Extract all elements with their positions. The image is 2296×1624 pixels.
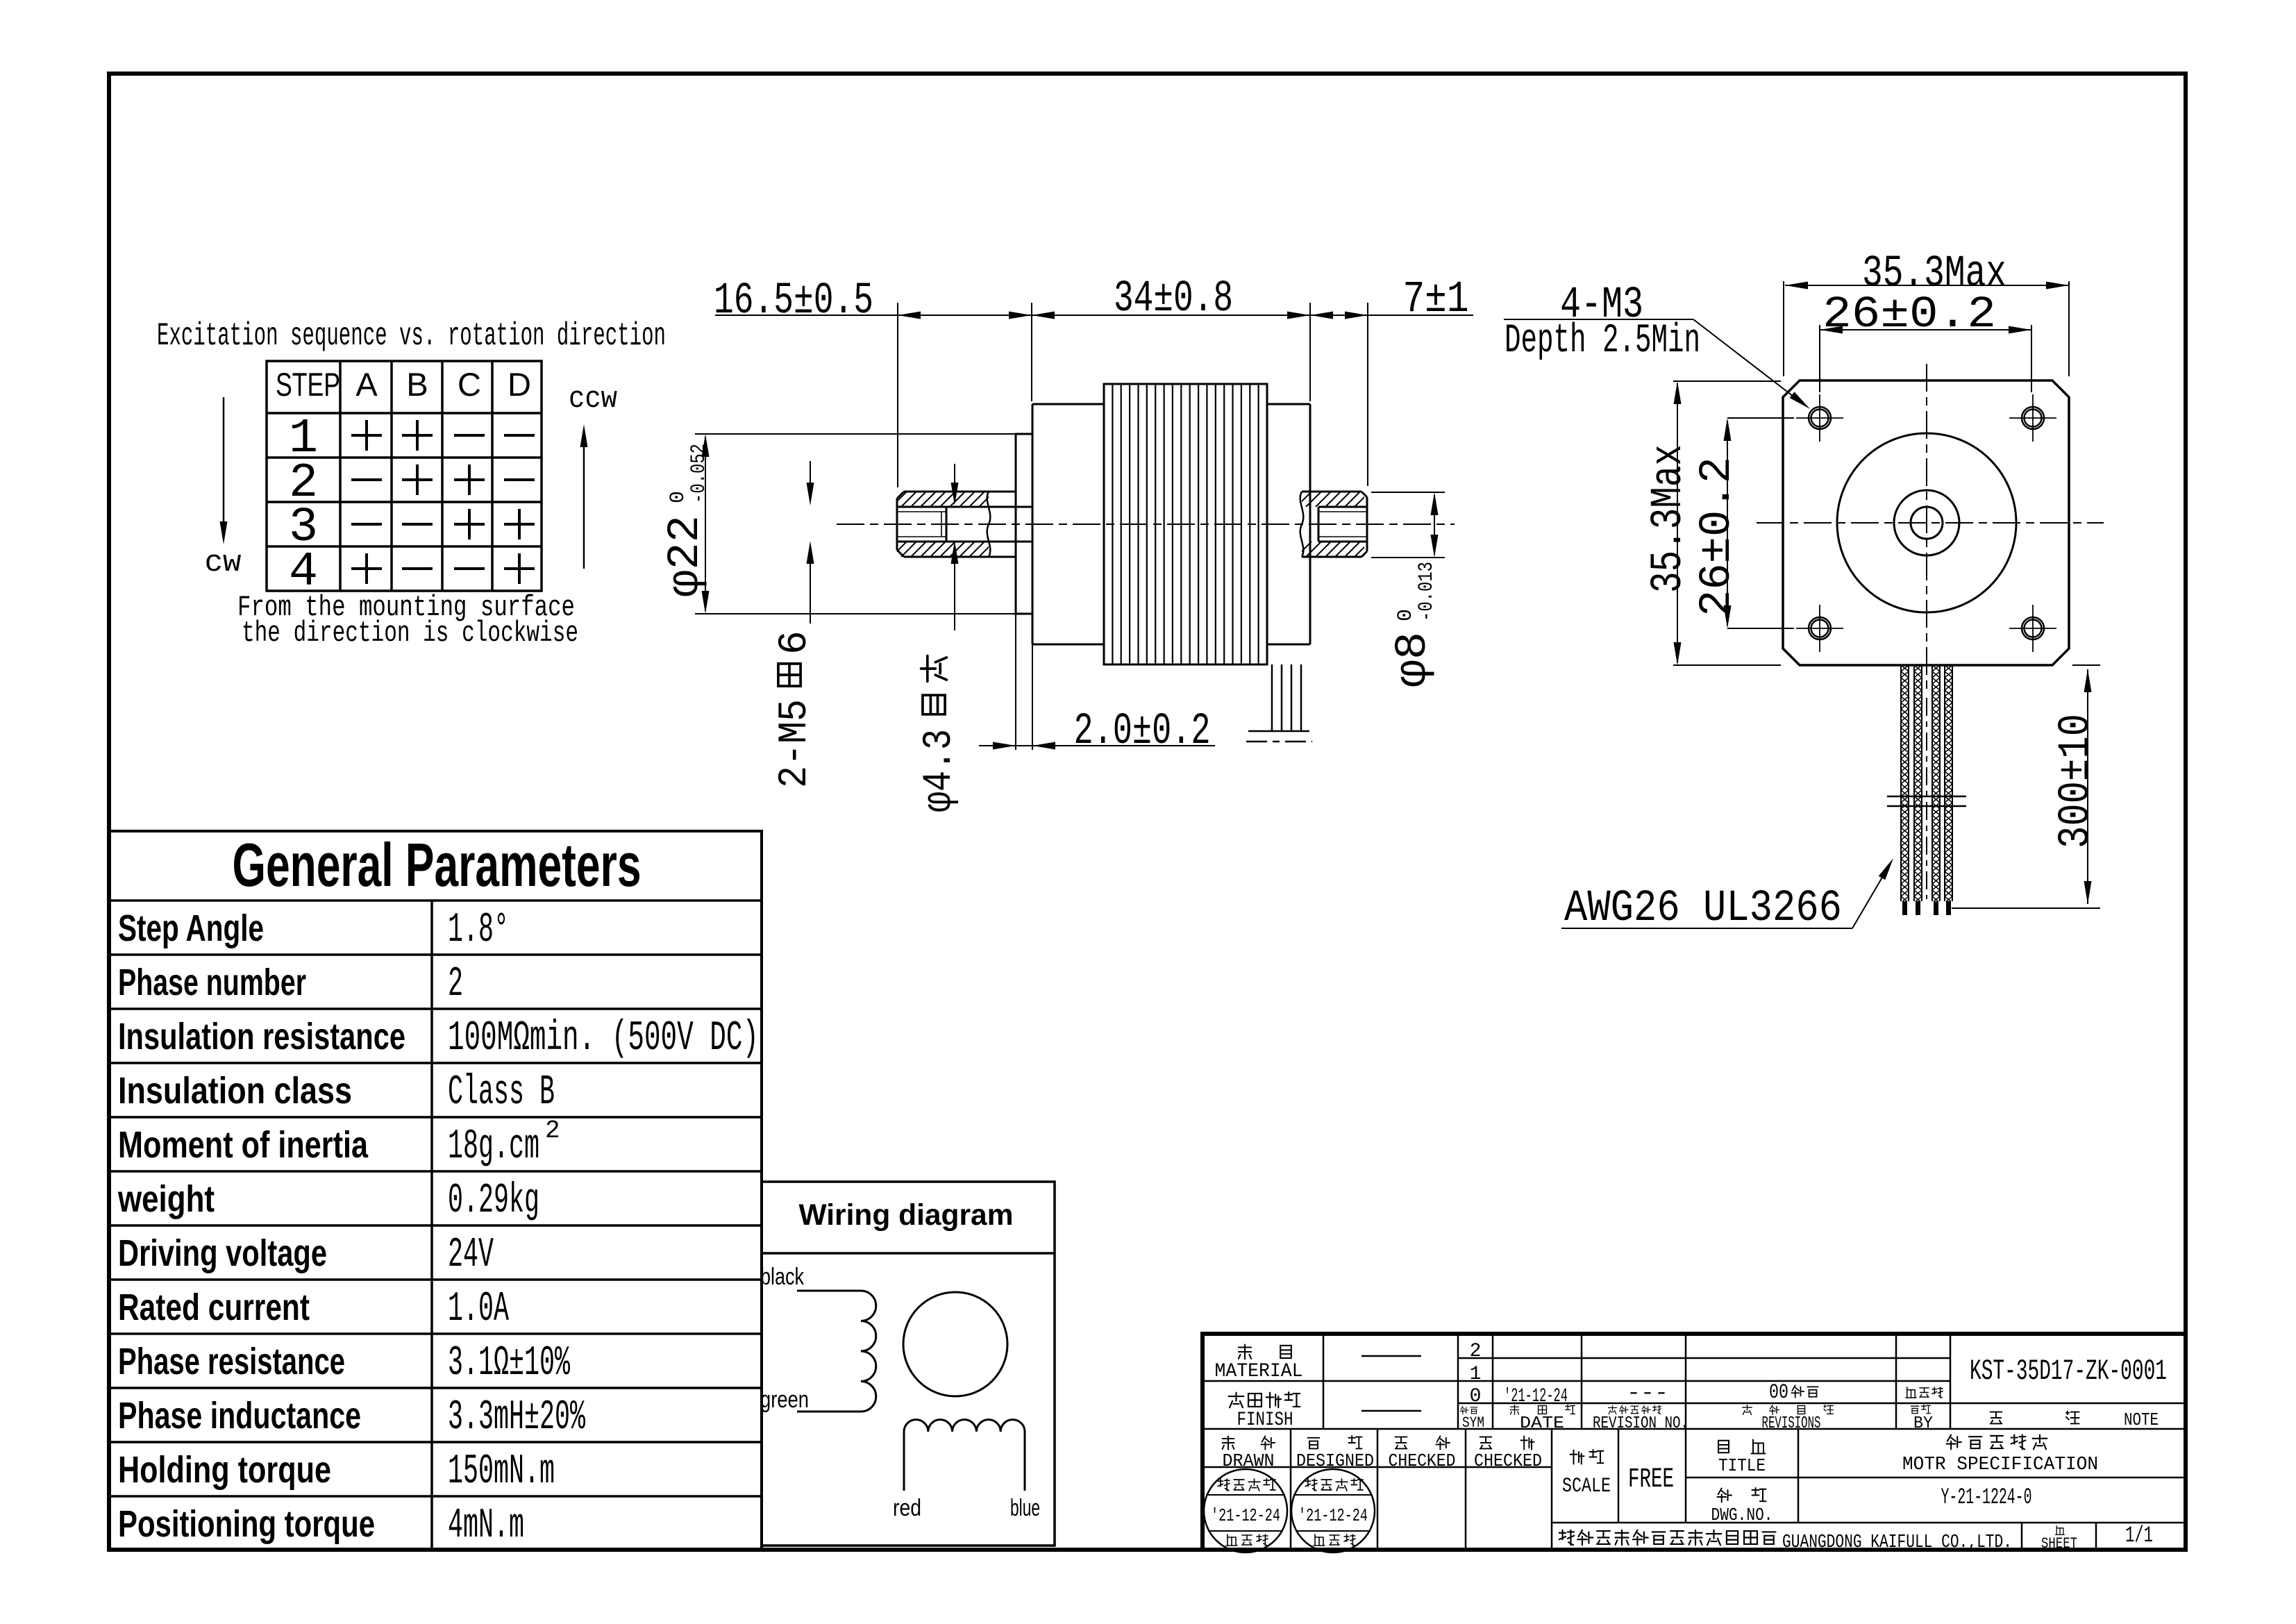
- svg-text:the direction is clockwise: the direction is clockwise: [242, 617, 578, 650]
- svg-text:Moment of inertia: Moment of inertia: [118, 1124, 369, 1166]
- svg-text:D: D: [508, 366, 531, 403]
- svg-text:B: B: [406, 366, 428, 403]
- svg-text:REVISION NO.: REVISION NO.: [1593, 1414, 1689, 1433]
- svg-text:BY: BY: [1913, 1414, 1933, 1433]
- svg-text:7±1: 7±1: [1403, 275, 1469, 325]
- svg-text:black: black: [760, 1264, 805, 1290]
- svg-text:FINISH: FINISH: [1237, 1409, 1293, 1431]
- svg-text:REVISIONS: REVISIONS: [1762, 1414, 1821, 1433]
- svg-text:Excitation sequence vs. rotati: Excitation sequence vs. rotation directi…: [157, 318, 666, 354]
- svg-text:Phase number: Phase number: [118, 962, 306, 1003]
- svg-text:3.1Ω±10%: 3.1Ω±10%: [448, 1340, 571, 1387]
- svg-text:-0.052: -0.052: [687, 444, 711, 503]
- svg-text:'21-12-24: '21-12-24: [1211, 1505, 1280, 1526]
- svg-text:35.3Max: 35.3Max: [1644, 444, 1694, 593]
- svg-text:φ22: φ22: [661, 515, 711, 597]
- svg-text:4mN.m: 4mN.m: [448, 1502, 524, 1550]
- svg-text:φ8: φ8: [1389, 632, 1439, 687]
- svg-text:150mN.m: 150mN.m: [448, 1448, 555, 1496]
- svg-text:General Parameters: General Parameters: [233, 830, 642, 899]
- svg-text:'21-12-24: '21-12-24: [1504, 1386, 1568, 1407]
- svg-text:MATERIAL: MATERIAL: [1215, 1361, 1303, 1382]
- svg-text:2.0±0.2: 2.0±0.2: [1074, 707, 1211, 757]
- svg-text:---: ---: [1627, 1382, 1668, 1405]
- svg-text:0: 0: [1394, 609, 1418, 621]
- svg-text:DWG.NO.: DWG.NO.: [1711, 1505, 1773, 1525]
- svg-text:SCALE: SCALE: [1562, 1475, 1611, 1498]
- svg-text:'21-12-24: '21-12-24: [1298, 1505, 1368, 1526]
- svg-text:AWG26 UL3266: AWG26 UL3266: [1564, 884, 1842, 934]
- svg-text:cw: cw: [205, 546, 242, 580]
- svg-text:DATE: DATE: [1520, 1414, 1564, 1433]
- svg-text:Insulation resistance: Insulation resistance: [118, 1016, 405, 1057]
- svg-text:ccw: ccw: [569, 382, 617, 417]
- svg-text:100MΩmin. (500V DC): 100MΩmin. (500V DC): [448, 1015, 759, 1062]
- svg-text:blue: blue: [1010, 1495, 1040, 1521]
- svg-text:Depth 2.5Min: Depth 2.5Min: [1505, 319, 1700, 364]
- svg-text:2: 2: [545, 1116, 560, 1145]
- svg-text:SHEET: SHEET: [2041, 1535, 2077, 1552]
- svg-text:0: 0: [1470, 1386, 1482, 1407]
- svg-text:24V: 24V: [448, 1232, 494, 1279]
- svg-text:18g.cm: 18g.cm: [448, 1123, 539, 1171]
- svg-text:DRAWN: DRAWN: [1223, 1450, 1275, 1471]
- svg-text:Step Angle: Step Angle: [118, 907, 264, 949]
- svg-text:C: C: [458, 366, 481, 403]
- svg-text:-0.013: -0.013: [1415, 562, 1439, 621]
- svg-text:26±0.2: 26±0.2: [1822, 290, 1996, 340]
- svg-text:Y-21-1224-0: Y-21-1224-0: [1941, 1484, 2032, 1510]
- svg-text:CHECKED: CHECKED: [1389, 1450, 1456, 1471]
- svg-text:CHECKED: CHECKED: [1474, 1450, 1542, 1471]
- svg-text:φ4.3: φ4.3: [917, 729, 962, 812]
- svg-text:2: 2: [448, 961, 463, 1008]
- svg-text:SYM: SYM: [1462, 1414, 1484, 1432]
- svg-text:1.8°: 1.8°: [448, 907, 509, 954]
- svg-text:3.3mH±20%: 3.3mH±20%: [448, 1394, 586, 1441]
- svg-text:Positioning torque: Positioning torque: [118, 1503, 375, 1545]
- svg-text:TITLE: TITLE: [1718, 1455, 1766, 1476]
- svg-text:300±10: 300±10: [2052, 714, 2102, 848]
- svg-text:Rated current: Rated current: [118, 1287, 310, 1328]
- svg-text:Holding torque: Holding torque: [118, 1449, 331, 1491]
- svg-text:1: 1: [1470, 1364, 1482, 1385]
- svg-text:weight: weight: [117, 1178, 215, 1220]
- svg-text:34±0.8: 34±0.8: [1114, 274, 1233, 324]
- svg-text:DESIGNED: DESIGNED: [1296, 1450, 1374, 1471]
- svg-text:FREE: FREE: [1628, 1464, 1674, 1496]
- svg-text:Driving voltage: Driving voltage: [118, 1232, 327, 1274]
- svg-text:red: red: [893, 1495, 921, 1521]
- svg-text:Insulation class: Insulation class: [118, 1070, 352, 1112]
- svg-text:GUANGDONG KAIFULL CO.,LTD.: GUANGDONG KAIFULL CO.,LTD.: [1782, 1532, 2012, 1553]
- svg-text:Phase resistance: Phase resistance: [118, 1341, 345, 1382]
- svg-text:2-M5: 2-M5: [773, 699, 818, 788]
- svg-text:MOTR SPECIFICATION: MOTR SPECIFICATION: [1902, 1455, 2098, 1475]
- svg-text:00: 00: [1769, 1381, 1788, 1405]
- svg-text:Class B: Class B: [448, 1069, 555, 1116]
- svg-text:26±0.2: 26±0.2: [1693, 457, 1743, 617]
- svg-text:6: 6: [773, 630, 818, 655]
- svg-text:STEP: STEP: [276, 366, 340, 403]
- svg-text:Wiring diagram: Wiring diagram: [799, 1198, 1014, 1232]
- svg-text:A: A: [355, 366, 378, 403]
- svg-text:0.29kg: 0.29kg: [448, 1178, 539, 1225]
- svg-text:16.5±0.5: 16.5±0.5: [714, 276, 873, 326]
- svg-text:1/1: 1/1: [2125, 1523, 2153, 1548]
- svg-text:0: 0: [667, 491, 690, 503]
- svg-text:NOTE: NOTE: [2124, 1409, 2159, 1430]
- svg-text:1.0A: 1.0A: [448, 1286, 509, 1333]
- svg-text:green: green: [760, 1387, 809, 1413]
- svg-text:Phase inductance: Phase inductance: [118, 1395, 361, 1437]
- svg-text:KST-35D17-ZK-0001: KST-35D17-ZK-0001: [1970, 1355, 2167, 1388]
- svg-text:2: 2: [1470, 1341, 1482, 1362]
